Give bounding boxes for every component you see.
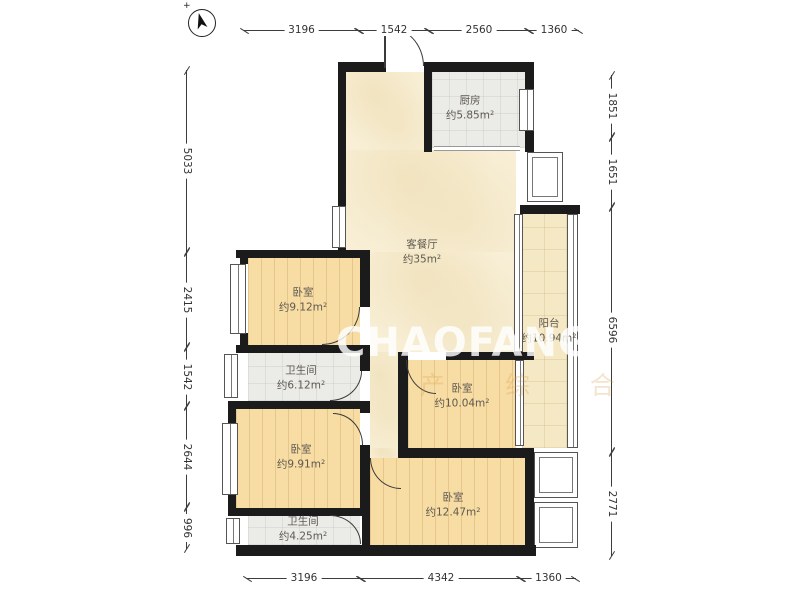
dim-right-4: 2771 <box>611 452 612 556</box>
room-area: 约12.47m² <box>426 505 481 520</box>
dim-label: 5033 <box>181 144 193 179</box>
dim-label: 4342 <box>424 572 459 584</box>
wall-segment <box>360 252 370 307</box>
room-area: 约4.25m² <box>279 529 327 544</box>
wall-segment <box>362 448 370 458</box>
wall-segment <box>525 448 534 556</box>
living-floor-upper <box>346 72 424 152</box>
dim-label: 2644 <box>181 439 193 474</box>
dim-label: 996 <box>181 514 193 542</box>
window <box>222 423 238 495</box>
dim-label: 1851 <box>606 89 618 124</box>
wall-segment <box>338 62 386 72</box>
wall-segment <box>228 409 236 423</box>
dim-label: 1651 <box>606 155 618 190</box>
room-label-bath-1: 卫生间 约6.12m² <box>277 363 325 392</box>
room-name: 卧室 <box>277 442 325 457</box>
dim-label: 6596 <box>606 312 618 347</box>
room-label-kitchen: 厨房 约5.85m² <box>446 93 494 122</box>
room-name: 卫生间 <box>277 363 325 378</box>
room-label-bath-2: 卫生间 约4.25m² <box>279 514 327 543</box>
wall-segment <box>520 205 580 214</box>
window <box>230 264 246 334</box>
room-label-bedroom-tl: 卧室 约9.12m² <box>279 285 327 314</box>
dim-label: 2771 <box>606 487 618 522</box>
bay-window <box>534 502 578 548</box>
wall-segment <box>240 252 248 264</box>
dim-left-3: 1542 <box>186 347 187 406</box>
dim-label: 1542 <box>377 24 412 36</box>
floor-plan-canvas: + <box>0 0 800 600</box>
room-label-bedroom-bl: 卧室 约9.91m² <box>277 442 325 471</box>
wall-segment <box>228 401 370 409</box>
dim-right-3: 6596 <box>611 207 612 452</box>
dim-bottom-1: 3196 <box>247 578 361 579</box>
wall-segment <box>236 545 536 556</box>
dim-right-1: 1851 <box>611 75 612 137</box>
room-name: 卧室 <box>426 490 481 505</box>
wall-segment <box>228 494 236 508</box>
dim-top-2: 1542 <box>359 30 429 31</box>
room-name: 客餐厅 <box>403 237 441 252</box>
window <box>519 89 534 131</box>
dim-label: 1360 <box>537 24 572 36</box>
wall-segment <box>240 333 248 345</box>
room-area: 约5.85m² <box>446 108 494 123</box>
hall-floor-2 <box>370 448 400 458</box>
wall-segment <box>236 250 370 258</box>
wall-segment <box>400 448 534 458</box>
wall-segment <box>362 458 370 548</box>
dim-left-5: 996 <box>186 507 187 549</box>
dim-bottom-2: 4342 <box>361 578 521 579</box>
wall-segment <box>338 72 346 208</box>
room-area: 约6.12m² <box>277 378 325 393</box>
wall-segment <box>424 62 534 72</box>
dim-label: 1542 <box>181 359 193 394</box>
dim-left-1: 5033 <box>186 70 187 252</box>
wall-segment <box>360 401 370 413</box>
dim-right-2: 1651 <box>611 137 612 207</box>
room-area: 约9.12m² <box>279 300 327 315</box>
dim-label: 3196 <box>287 572 322 584</box>
dim-left-2: 2415 <box>186 252 187 347</box>
dim-top-3: 2560 <box>429 30 529 31</box>
wall-segment <box>424 72 432 152</box>
room-label-bedroom-br: 卧室 约12.47m² <box>426 490 481 519</box>
room-area: 约9.91m² <box>277 457 325 472</box>
wall-segment <box>525 62 534 89</box>
room-name: 卫生间 <box>279 514 327 529</box>
north-arrow-icon <box>188 9 215 36</box>
watermark-logo-text: CHAOFANG <box>336 320 592 366</box>
dim-top-1: 3196 <box>244 30 359 31</box>
window <box>226 518 240 544</box>
hall-floor <box>370 352 398 448</box>
dim-top-4: 1360 <box>529 30 579 31</box>
dim-left-4: 2644 <box>186 406 187 507</box>
dim-label: 2415 <box>181 282 193 317</box>
compass-plus: + <box>183 1 191 11</box>
kitchen-pass-sill <box>434 146 520 151</box>
north-compass-icon <box>188 9 216 37</box>
dim-label: 1360 <box>531 572 566 584</box>
room-area: 约35m² <box>403 252 441 267</box>
watermark-sub-text: 产 综 合 <box>420 366 641 402</box>
bay-window <box>527 152 563 202</box>
room-name: 卧室 <box>279 285 327 300</box>
dim-bottom-3: 1360 <box>521 578 576 579</box>
room-name: 厨房 <box>446 93 494 108</box>
room-label-living: 客餐厅 约35m² <box>403 237 441 266</box>
dim-label: 3196 <box>284 24 319 36</box>
window <box>332 206 346 248</box>
dim-label: 2560 <box>462 24 497 36</box>
wall-segment <box>525 131 534 152</box>
window <box>224 354 238 398</box>
bay-window <box>534 452 578 498</box>
